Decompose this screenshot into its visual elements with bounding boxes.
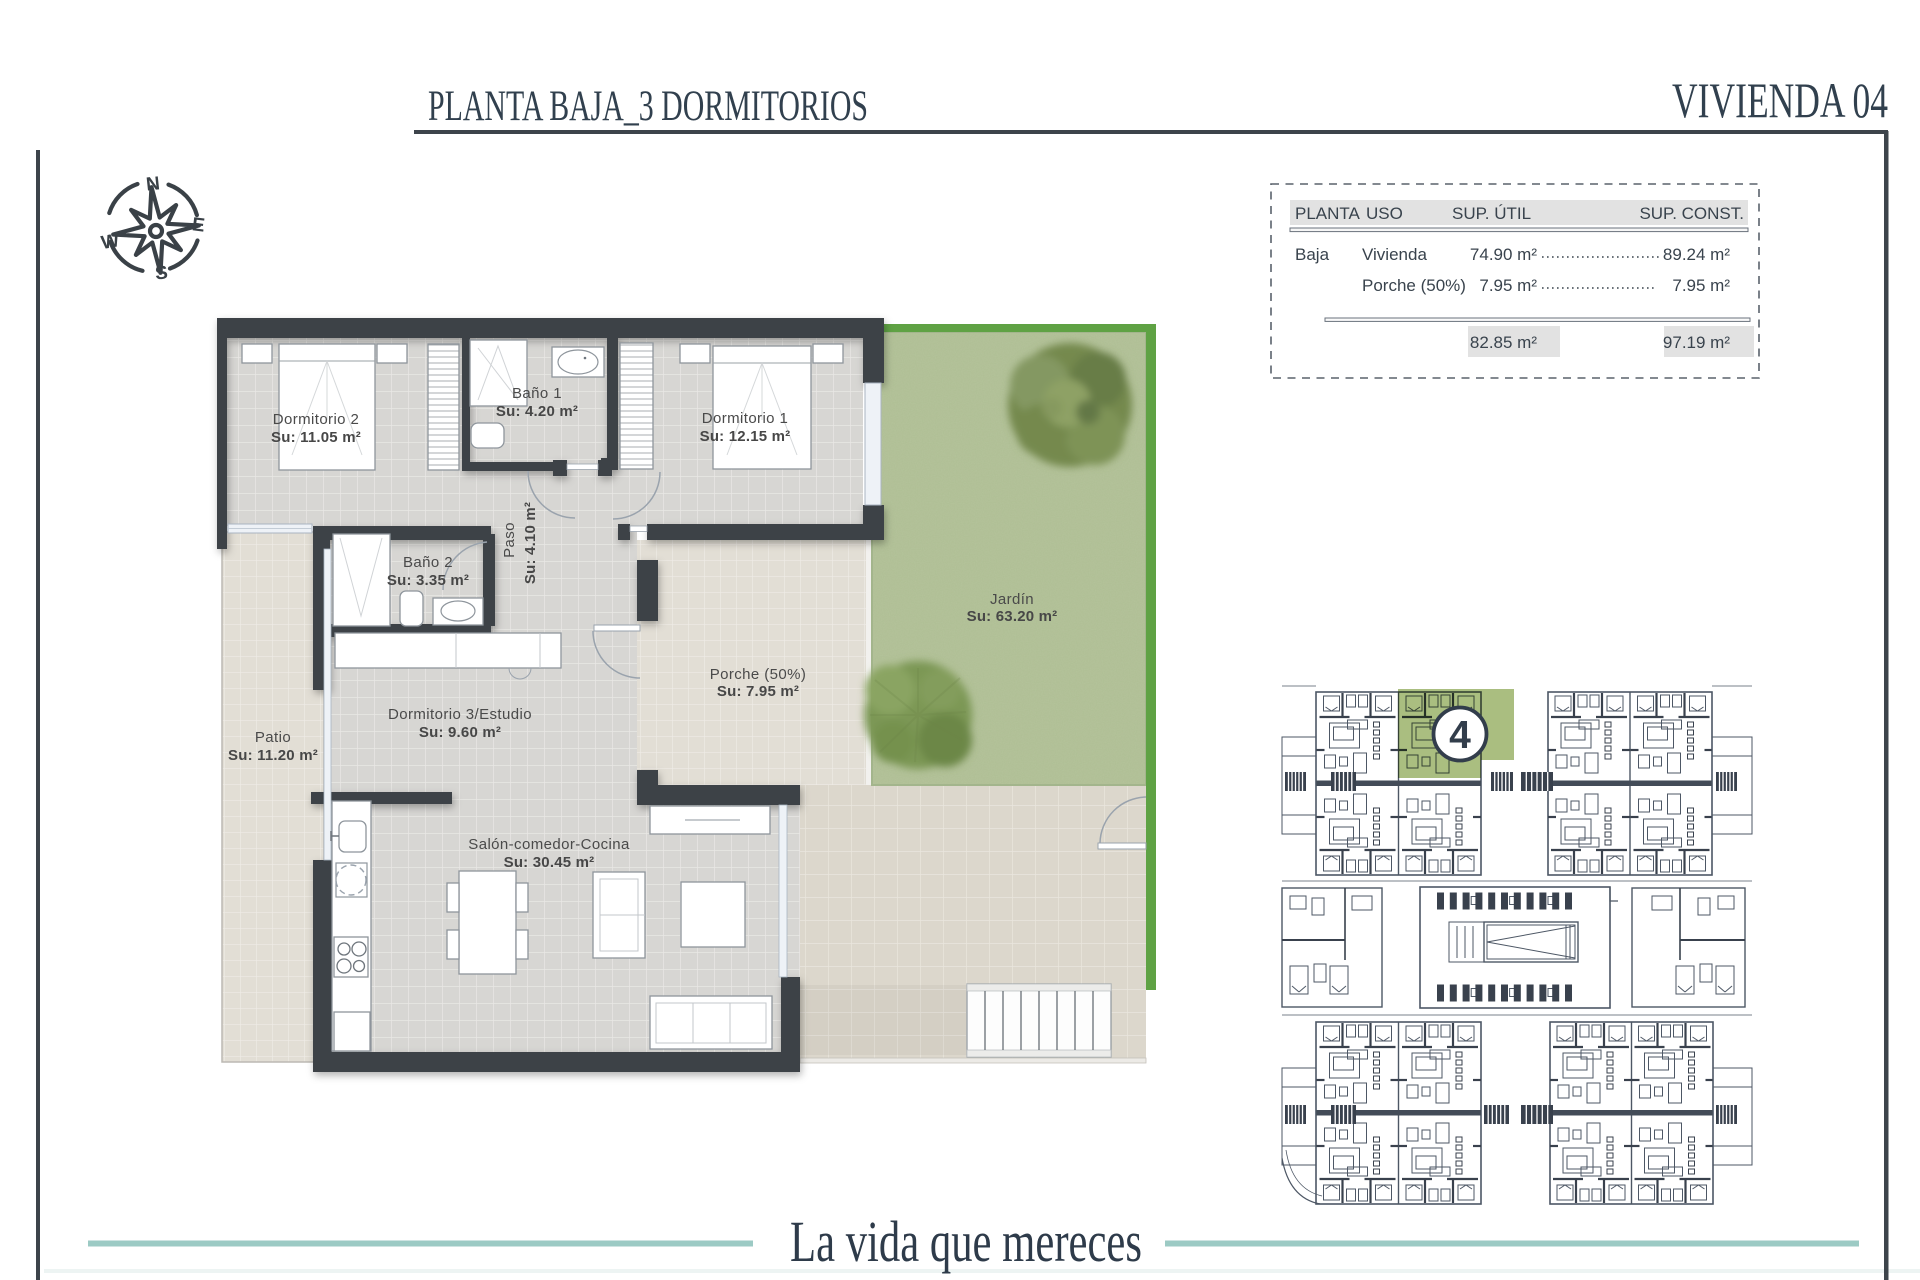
svg-text:S: S	[154, 262, 168, 284]
svg-text:W: W	[100, 230, 121, 254]
svg-text:Su: 12.15 m²: Su: 12.15 m²	[700, 428, 791, 445]
svg-text:Jardín: Jardín	[990, 591, 1034, 608]
svg-text:SUP. ÚTIL: SUP. ÚTIL	[1452, 204, 1531, 223]
svg-text:Su: 4.20 m²: Su: 4.20 m²	[496, 403, 578, 420]
svg-text:Patio: Patio	[255, 729, 291, 746]
svg-text:VIVIENDA 04: VIVIENDA 04	[1672, 72, 1888, 128]
svg-text:SUP. CONST.: SUP. CONST.	[1639, 204, 1744, 223]
svg-text:97.19 m²: 97.19 m²	[1663, 333, 1730, 352]
svg-text:N: N	[145, 173, 161, 195]
svg-text:USO: USO	[1366, 204, 1403, 223]
svg-text:Su: 30.45 m²: Su: 30.45 m²	[504, 854, 595, 871]
svg-text:La vida que mereces: La vida que mereces	[790, 1209, 1142, 1274]
svg-text:Baja: Baja	[1295, 245, 1330, 264]
svg-text:Su: 7.95 m²: Su: 7.95 m²	[717, 683, 799, 700]
svg-text:Su: 3.35 m²: Su: 3.35 m²	[387, 572, 469, 589]
svg-text:E: E	[191, 214, 206, 236]
svg-text:Dormitorio 2: Dormitorio 2	[273, 411, 360, 428]
svg-text:Vivienda: Vivienda	[1362, 245, 1427, 264]
svg-text:Salón-comedor-Cocina: Salón-comedor-Cocina	[468, 836, 630, 853]
svg-text:Baño 2: Baño 2	[403, 554, 453, 571]
svg-text:7.95 m²: 7.95 m²	[1672, 276, 1730, 295]
svg-text:Porche (50%): Porche (50%)	[1362, 276, 1466, 295]
svg-text:Su: 11.20 m²: Su: 11.20 m²	[228, 747, 318, 764]
svg-text:Dormitorio 3/Estudio: Dormitorio 3/Estudio	[388, 706, 532, 723]
svg-text:PLANTA BAJA_3 DORMITORIOS: PLANTA BAJA_3 DORMITORIOS	[428, 83, 868, 130]
svg-text:Dormitorio 1: Dormitorio 1	[702, 410, 789, 427]
svg-text:7.95 m²: 7.95 m²	[1479, 276, 1537, 295]
svg-text:Porche (50%): Porche (50%)	[710, 666, 807, 683]
svg-text:Su: 11.05 m²: Su: 11.05 m²	[271, 429, 361, 446]
svg-text:82.85 m²: 82.85 m²	[1470, 333, 1537, 352]
svg-text:PLANTA: PLANTA	[1295, 204, 1361, 223]
svg-text:Su: 9.60 m²: Su: 9.60 m²	[419, 724, 501, 741]
svg-text:Su: 4.10 m²: Su: 4.10 m²	[522, 502, 539, 584]
svg-text:4: 4	[1449, 714, 1471, 757]
svg-text:74.90 m²: 74.90 m²	[1470, 245, 1537, 264]
svg-text:Paso: Paso	[501, 522, 518, 558]
svg-text:Su: 63.20 m²: Su: 63.20 m²	[967, 608, 1058, 625]
svg-text:89.24 m²: 89.24 m²	[1663, 245, 1730, 264]
svg-text:Baño 1: Baño 1	[512, 385, 562, 402]
